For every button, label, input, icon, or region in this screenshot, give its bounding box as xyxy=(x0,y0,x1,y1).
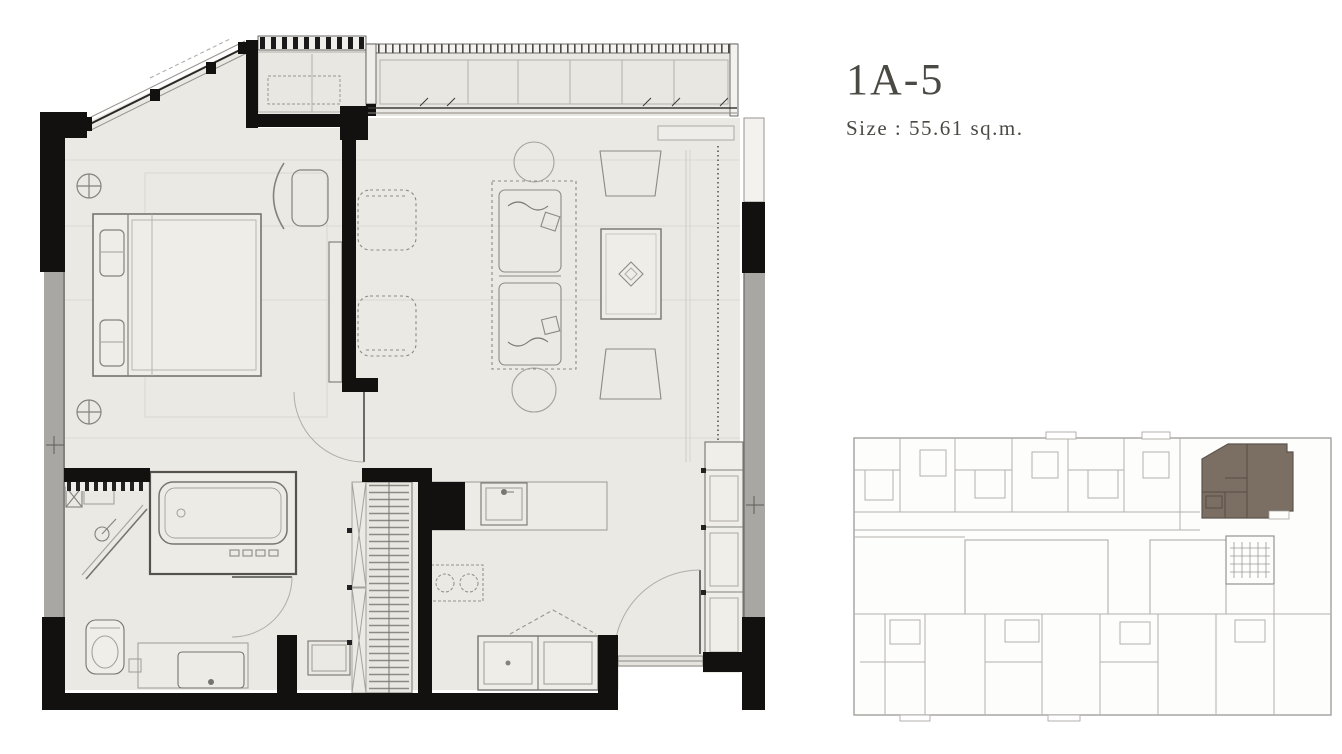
double-bed xyxy=(93,214,261,376)
unit-floor-plan xyxy=(40,36,765,711)
vanity-sink xyxy=(129,643,248,688)
title-block: 1A-5 Size : 55.61 sq.m. xyxy=(846,58,1024,141)
window-strip-right xyxy=(744,118,765,617)
key-plan xyxy=(854,432,1331,721)
entry-recess xyxy=(703,673,742,711)
bath-enclosure xyxy=(150,472,296,574)
page: 1A-5 Size : 55.61 sq.m. xyxy=(0,0,1342,754)
entry-recess xyxy=(619,667,703,711)
unit-name: 1A-5 xyxy=(846,58,1024,102)
wall-lamp xyxy=(77,400,101,424)
window-strip-left xyxy=(44,272,65,617)
niche-hatch xyxy=(66,482,148,491)
wall-lamp xyxy=(77,174,101,198)
floorplan-drawing xyxy=(0,0,1342,754)
balcony xyxy=(368,48,737,116)
unit-size-label: Size : 55.61 sq.m. xyxy=(846,116,1024,141)
window-shelf xyxy=(658,126,734,140)
wardrobe xyxy=(347,482,412,693)
dining-table xyxy=(601,229,661,319)
entry-threshold xyxy=(618,656,703,666)
tv-console xyxy=(329,242,342,382)
toilet xyxy=(86,620,124,674)
entry-closet xyxy=(701,442,743,658)
key-plan-highlighted-unit xyxy=(1202,444,1293,519)
